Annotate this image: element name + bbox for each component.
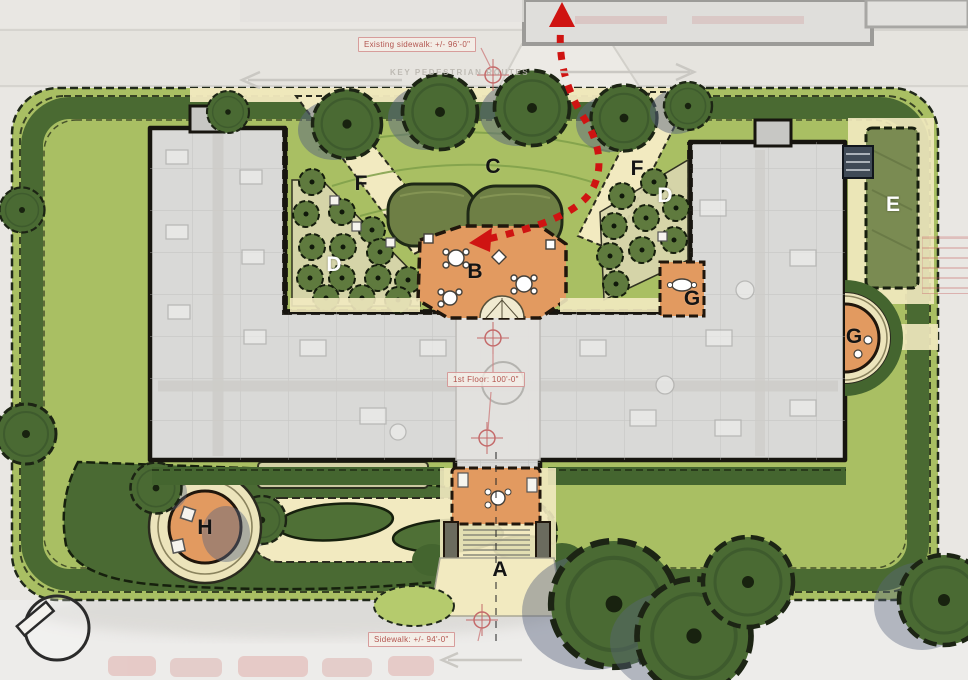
patio-g-inner xyxy=(660,262,704,316)
callout-existing-sidewalk: Existing sidewalk: +/- 96'-0" xyxy=(358,37,476,52)
patio-g-right xyxy=(845,286,897,390)
site-plan-drawing xyxy=(0,0,968,680)
cropped-annotation-text xyxy=(922,236,968,294)
site-plan-canvas: Existing sidewalk: +/- 96'-0" 1st Floor:… xyxy=(0,0,968,680)
callout-sidewalk: Sidewalk: +/- 94'-0" xyxy=(368,632,455,647)
key-pedestrian-routes-text: KEY PEDESTRIAN ROUTES xyxy=(390,68,529,77)
callout-first-floor: 1st Floor: 100'-0" xyxy=(447,372,525,387)
